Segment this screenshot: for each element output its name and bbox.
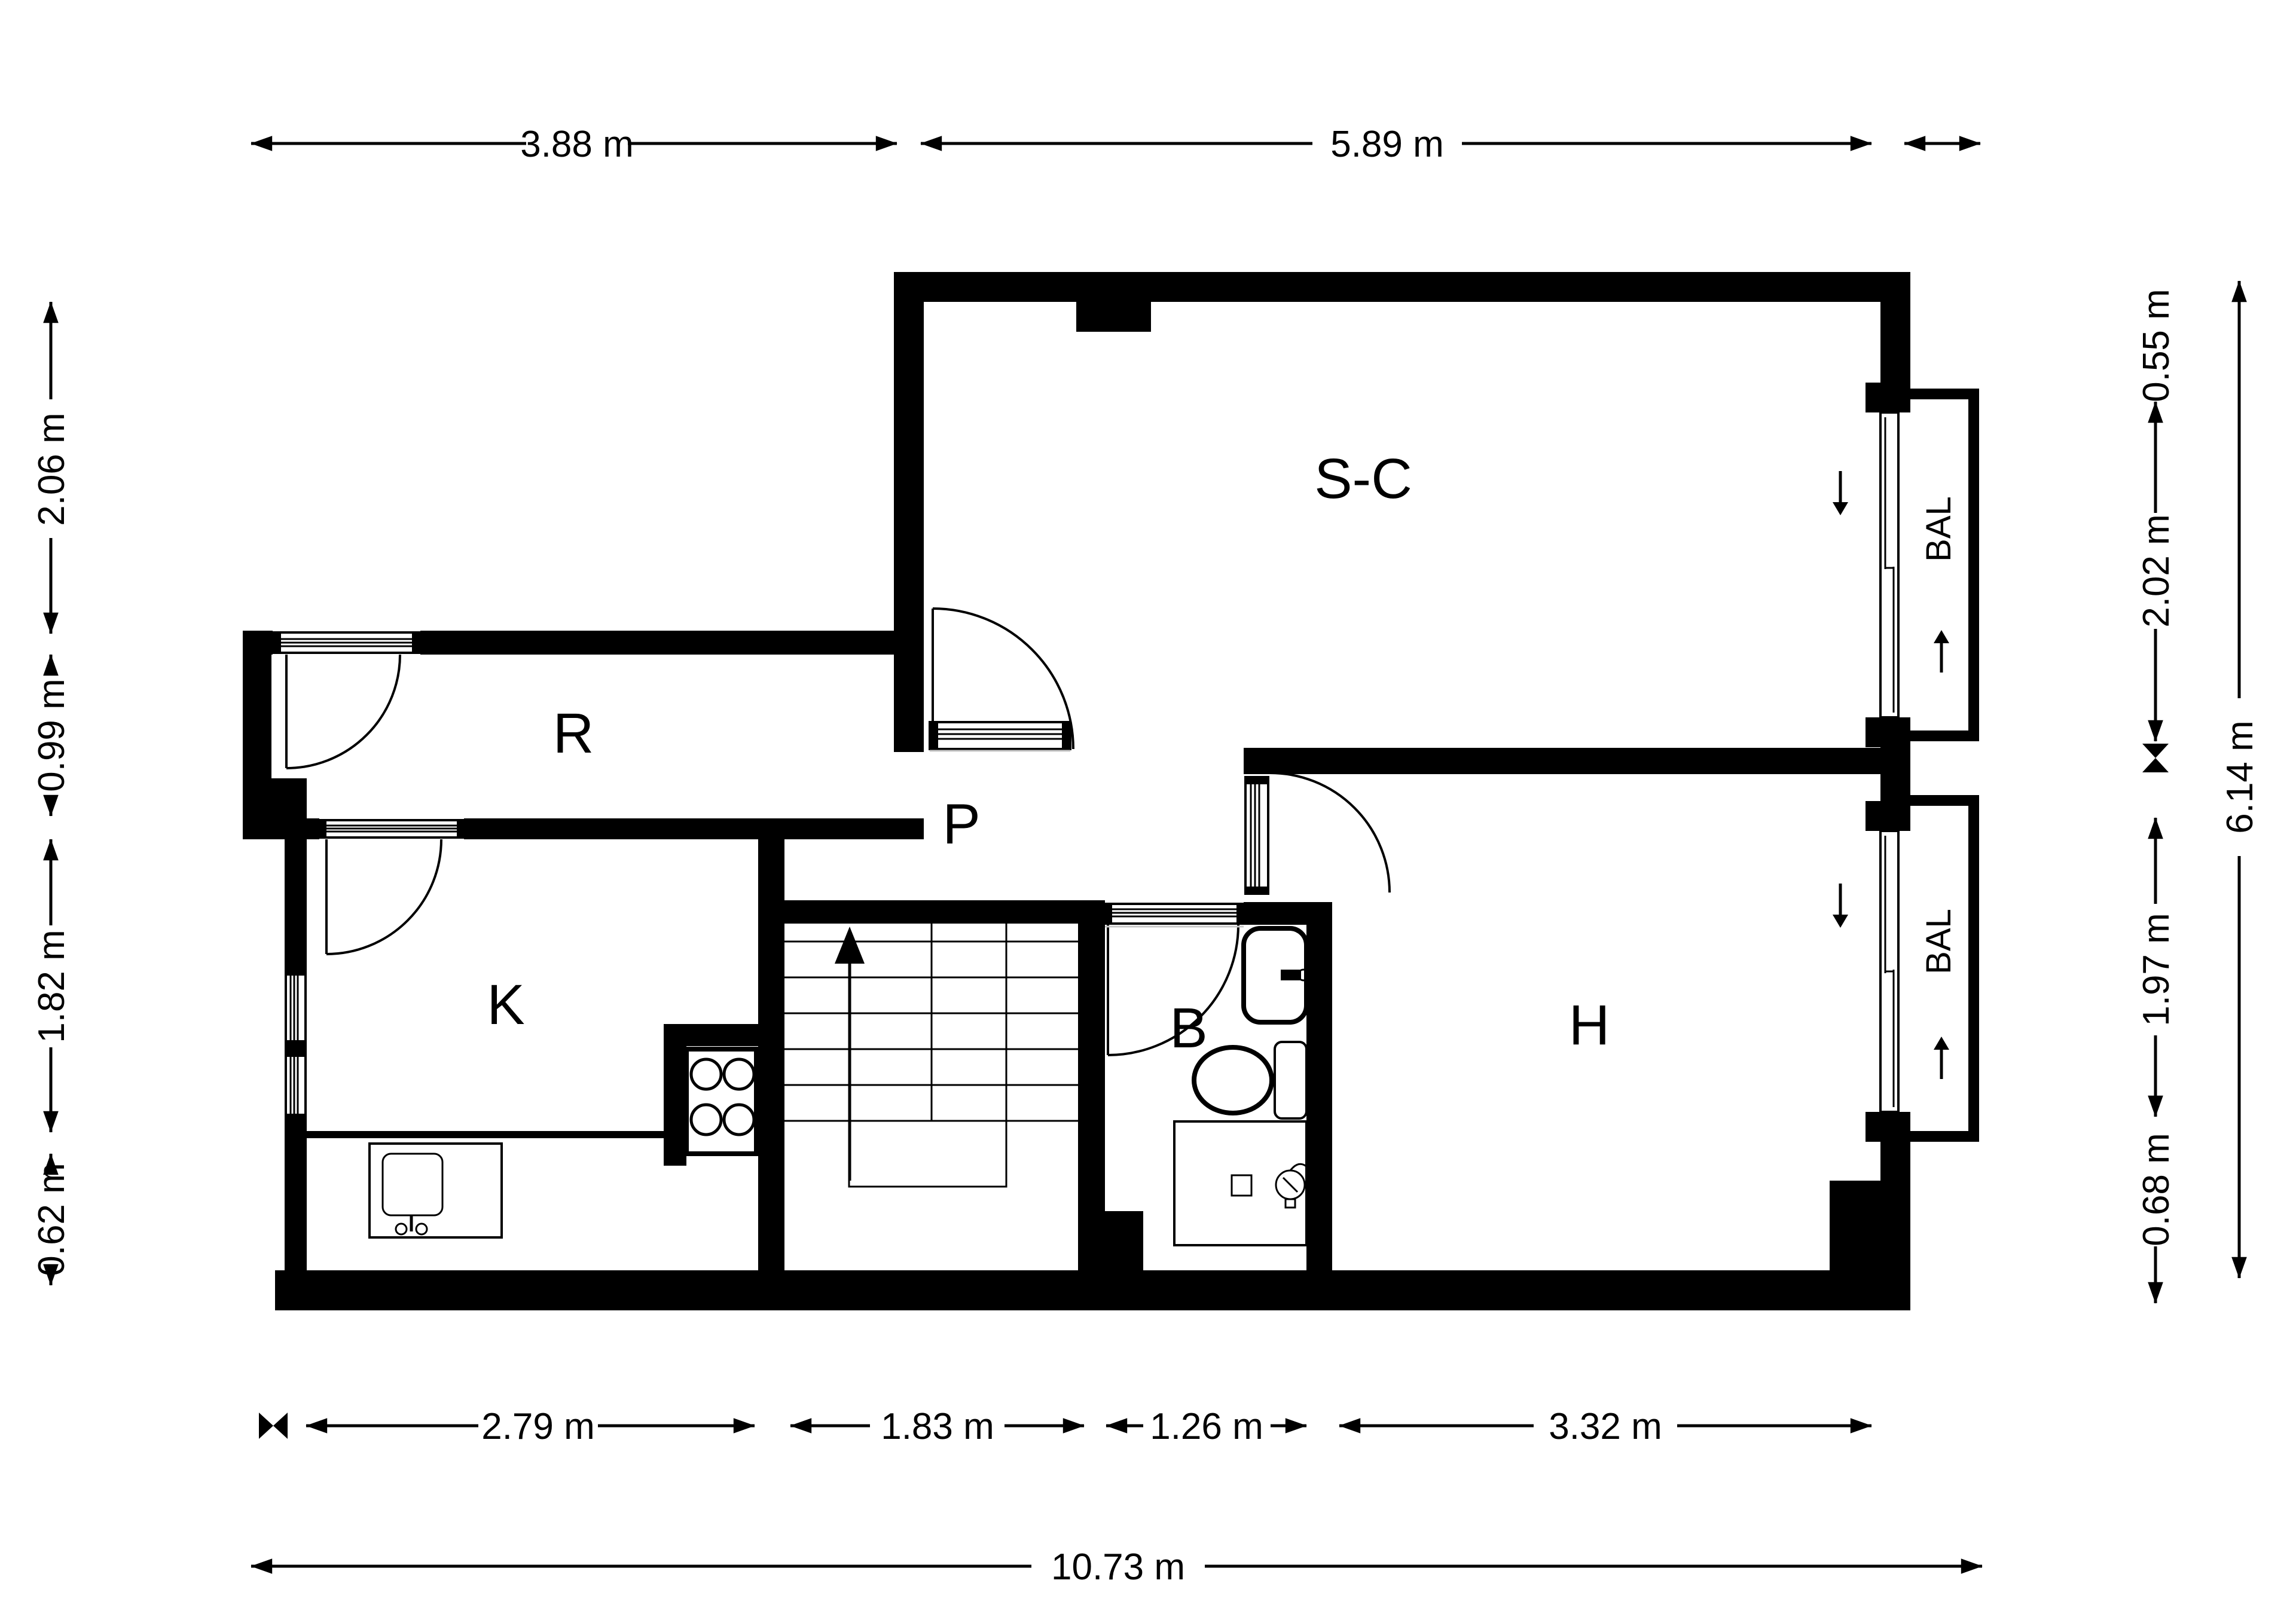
dim-label: 5.89 m — [1330, 124, 1444, 165]
bal2-down-arrow-icon — [1833, 884, 1848, 928]
sink-icon — [370, 1144, 502, 1237]
dim-bottom-279: 2.79 m — [306, 1406, 755, 1447]
dim-label: 3.32 m — [1549, 1406, 1662, 1447]
wall-stove-nook-h — [664, 1024, 758, 1046]
h-door — [1270, 773, 1390, 893]
bal1-down-arrow-icon — [1833, 471, 1848, 515]
dim-label: 0.55 m — [2136, 289, 2177, 402]
stove-icon — [686, 1049, 756, 1154]
room-label-kitchen: K — [487, 973, 524, 1037]
dim-label: 2.79 m — [481, 1406, 595, 1447]
balcony-1-label: BAL — [1919, 496, 1958, 562]
wall-right-stub-4 — [1865, 1112, 1910, 1142]
room-label-bedroom: H — [1569, 994, 1610, 1057]
room-label-living: S-C — [1314, 447, 1412, 511]
shower-icon — [1174, 1121, 1311, 1245]
wall-b-left — [1078, 924, 1105, 1211]
wall-bal1-bottom — [1910, 730, 1979, 741]
h-door-sill — [1245, 777, 1268, 894]
dim-bottom-126: 1.26 m — [1106, 1406, 1306, 1447]
wall-sc-top — [894, 272, 1910, 302]
dim-right-055: 0.55 m — [2136, 289, 2177, 402]
b-door-sill — [1105, 904, 1244, 924]
wall-left-corner-block — [243, 778, 307, 839]
counter-edge — [307, 1131, 664, 1138]
bathroom-fixtures — [1174, 928, 1311, 1245]
room-label-hall: R — [553, 702, 594, 765]
dim-label: 1.83 m — [881, 1406, 994, 1447]
wall-br-corner-block — [1830, 1181, 1910, 1270]
dim-right-202: 2.02 m — [2136, 402, 2177, 741]
dim-label: 2.06 m — [31, 412, 72, 526]
dim-bottom-wall-marker — [259, 1413, 288, 1439]
wall-bal2-right — [1968, 795, 1979, 1142]
dim-label: 1.26 m — [1150, 1406, 1263, 1447]
wall-bal2-bottom — [1910, 1131, 1979, 1142]
wall-bottom — [275, 1270, 1910, 1310]
floor-plan-page: S-C R P K B H BAL BAL 3.88 m 5.89 m — [0, 0, 2296, 1623]
bal2-up-arrow-icon — [1934, 1037, 1949, 1079]
dim-top-388: 3.88 m — [251, 124, 897, 165]
stairs-landing — [849, 1121, 1006, 1187]
dim-bottom-total: 10.73 m — [251, 1546, 1982, 1588]
bal2-sliding-door — [1880, 831, 1898, 1112]
dim-label: 0.68 m — [2136, 1133, 2177, 1246]
dim-label: 6.14 m — [2219, 720, 2261, 834]
dim-left-062: 0.62 m — [31, 1154, 72, 1285]
dimensions-left: 2.06 m 0.99 m 1.82 m 0.62 m — [31, 302, 72, 1285]
floor-plan-svg: S-C R P K B H BAL BAL 3.88 m 5.89 m — [0, 0, 2296, 1623]
dim-left-182: 1.82 m — [31, 839, 72, 1132]
dimensions-right: 0.55 m 2.02 m 1.97 m 0.68 m 6.14 m — [2136, 281, 2261, 1303]
dim-right-068: 0.68 m — [2136, 1133, 2177, 1303]
washbasin-icon — [1244, 928, 1309, 1022]
wall-right-stub-1 — [1865, 383, 1910, 412]
dim-label: 2.02 m — [2136, 514, 2177, 628]
wall-left-lower-a — [285, 839, 307, 968]
bal1-up-arrow-icon — [1934, 630, 1949, 673]
dim-left-099: 0.99 m — [31, 655, 72, 816]
dim-label: 1.97 m — [2136, 913, 2177, 1026]
k-door — [326, 839, 441, 954]
kitchen-fixtures — [370, 1049, 756, 1237]
stairs-up-arrow-icon — [835, 927, 865, 1181]
dim-label: 0.62 m — [31, 1163, 72, 1276]
wall-pillar-stub — [1076, 296, 1151, 332]
wall-stairs-top-band — [784, 900, 1105, 924]
balcony-2-label: BAL — [1919, 909, 1958, 974]
dim-right-gap-marker — [2142, 744, 2169, 772]
sc-door-sill — [930, 722, 1070, 749]
dimensions-bottom: 2.79 m 1.83 m 1.26 m 3.32 m 10.73 m — [251, 1406, 1982, 1588]
staircase — [784, 924, 1078, 1187]
r-entry-sill — [273, 632, 420, 653]
dim-right-total: 6.14 m — [2219, 281, 2261, 1278]
dim-label: 10.73 m — [1051, 1546, 1185, 1588]
wall-k-stairs — [758, 839, 784, 1270]
dimensions-top: 3.88 m 5.89 m — [251, 124, 1980, 165]
dim-label: 1.82 m — [31, 930, 72, 1043]
r-entry-door — [286, 655, 400, 768]
dim-left-206: 2.06 m — [31, 302, 72, 634]
room-label-bathroom: B — [1170, 997, 1207, 1060]
dim-top-589: 5.89 m — [921, 124, 1871, 165]
wall-b-foot-block — [1078, 1211, 1143, 1270]
wall-b-top-block — [1244, 902, 1332, 925]
dim-bottom-332: 3.32 m — [1339, 1406, 1871, 1447]
k-door-sill — [319, 820, 464, 838]
bal1-sliding-door — [1880, 412, 1898, 717]
wall-b-right — [1306, 925, 1332, 1270]
wall-sc-h — [1244, 748, 1880, 774]
wall-r-top-right — [420, 631, 894, 655]
wall-left-upper — [243, 655, 271, 778]
dim-label: 3.88 m — [520, 124, 634, 165]
dim-bottom-183: 1.83 m — [790, 1406, 1084, 1447]
wall-rk-stub — [307, 818, 319, 839]
wall-r-top-left — [243, 631, 273, 655]
wall-right-stub-2 — [1865, 717, 1910, 747]
toilet-icon — [1194, 1042, 1306, 1118]
wall-right-stub-3 — [1865, 801, 1910, 831]
wall-bal1-right — [1968, 389, 1979, 741]
wall-sc-left — [894, 302, 924, 752]
dim-right-197: 1.97 m — [2136, 818, 2177, 1117]
room-label-passage: P — [942, 793, 980, 856]
k-window — [286, 968, 306, 1121]
walls — [243, 272, 1979, 1310]
wall-rk-main — [464, 818, 924, 839]
dim-label: 0.99 m — [31, 678, 72, 792]
